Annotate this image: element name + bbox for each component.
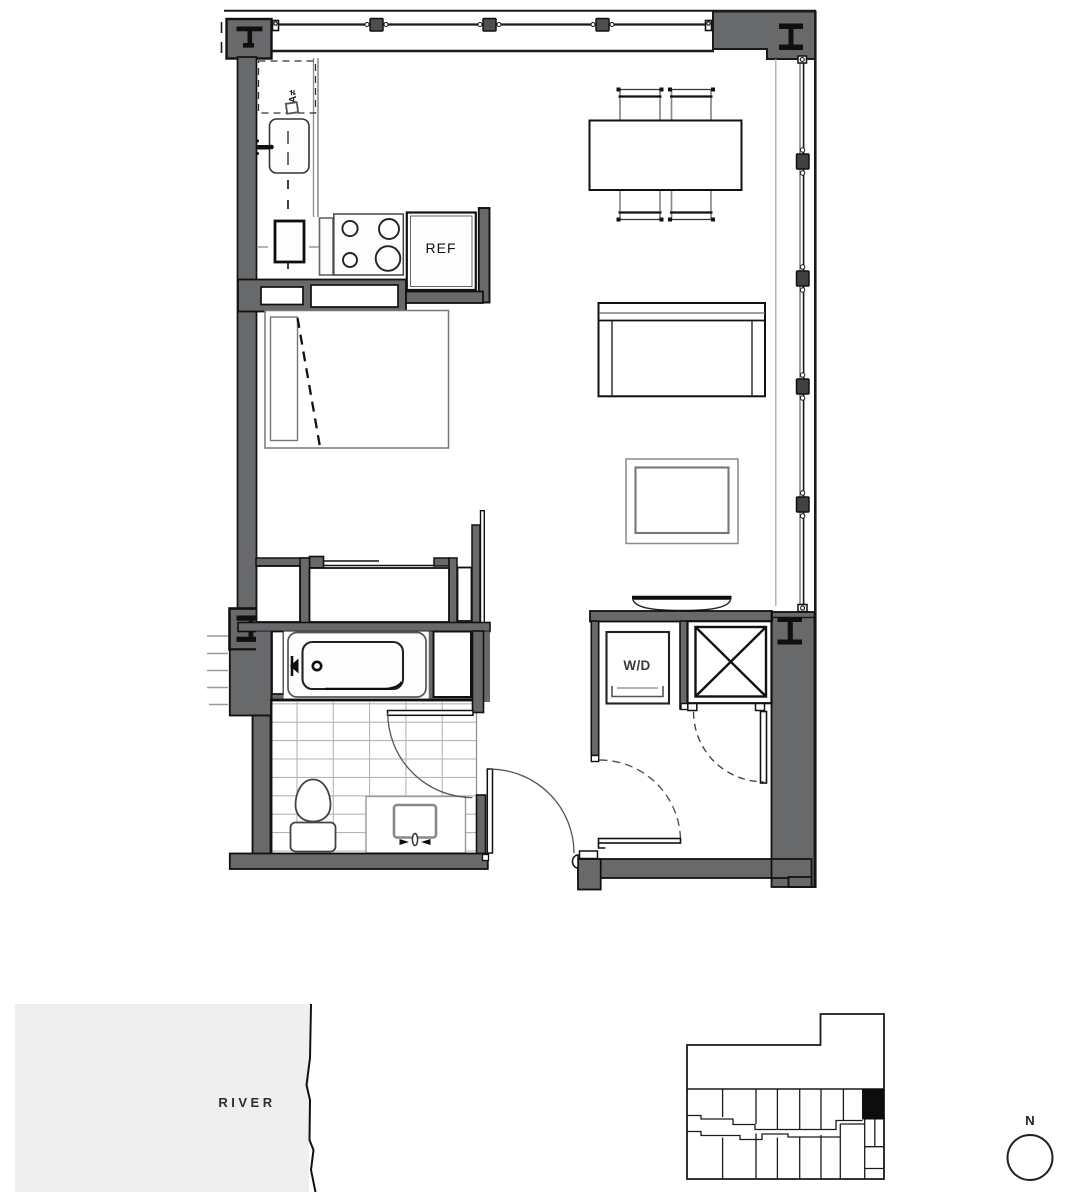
svg-text:N: N (1025, 1113, 1034, 1128)
svg-text:W/D: W/D (623, 658, 650, 673)
svg-text:A≠: A≠ (288, 89, 299, 103)
svg-text:RIVER: RIVER (218, 1095, 275, 1110)
svg-text:REF: REF (426, 240, 457, 256)
